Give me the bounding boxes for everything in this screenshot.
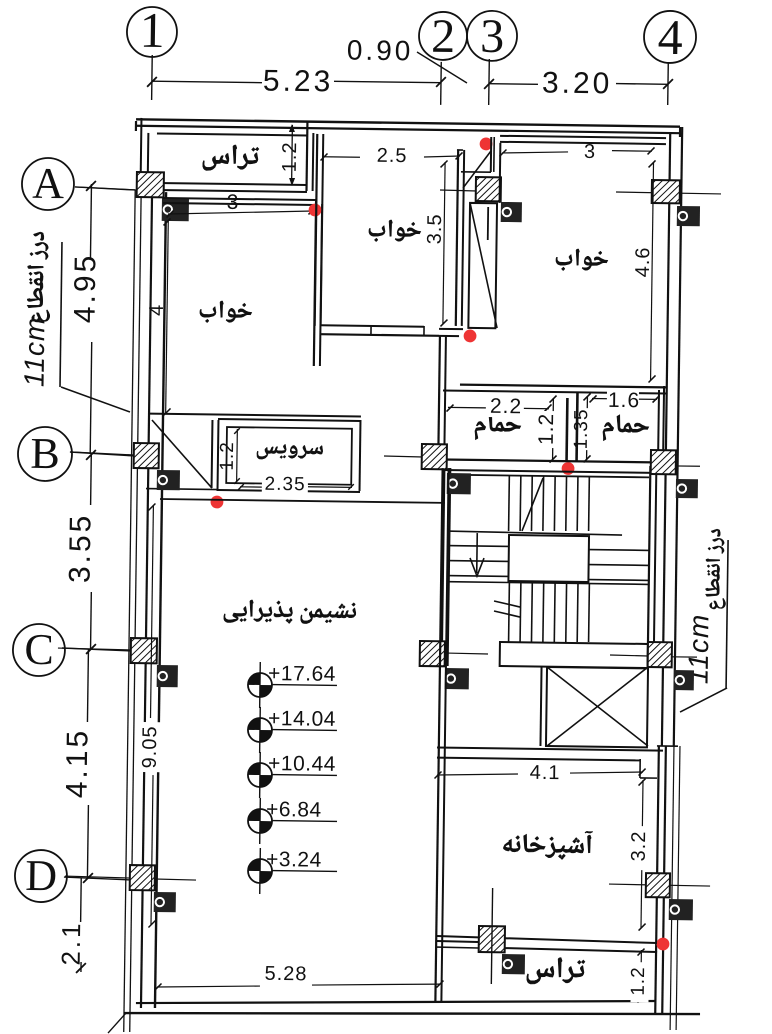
svg-text:5.23: 5.23 [263,64,334,98]
svg-text:4: 4 [146,304,168,316]
svg-text:3.5: 3.5 [424,213,446,244]
svg-text:5.28: 5.28 [264,963,307,986]
svg-text:3.2: 3.2 [628,830,650,861]
svg-text:A: A [32,159,65,208]
svg-text:+6.84: +6.84 [266,798,322,822]
svg-text:2.5: 2.5 [377,145,408,167]
svg-text:4.6: 4.6 [632,246,654,277]
svg-text:1.2: 1.2 [279,141,301,172]
svg-text:9.05: 9.05 [139,725,162,768]
svg-text:2.1: 2.1 [56,920,87,966]
svg-text:4.1: 4.1 [530,762,561,784]
svg-text:+3.24: +3.24 [266,848,322,872]
svg-text:1.6: 1.6 [608,389,641,412]
svg-text:B: B [30,429,60,478]
svg-text:2.2: 2.2 [490,395,523,418]
svg-text:D: D [25,851,57,900]
svg-text:1.2: 1.2 [217,441,238,471]
svg-text:3: 3 [480,10,505,63]
svg-text:2: 2 [431,10,456,63]
svg-text:3: 3 [584,141,596,163]
svg-text:4.15: 4.15 [61,728,95,799]
svg-text:0.90: 0.90 [347,35,414,67]
svg-text:4.95: 4.95 [68,252,102,323]
svg-text:1.35: 1.35 [571,408,593,449]
svg-text:3.55: 3.55 [64,512,98,583]
svg-text:3.20: 3.20 [542,66,613,100]
svg-text:11cm: 11cm [19,316,51,387]
svg-text:3: 3 [227,191,240,214]
svg-text:4: 4 [657,9,683,65]
svg-text:1.2: 1.2 [628,966,649,996]
svg-text:+10.44: +10.44 [268,752,336,776]
svg-text:1.2: 1.2 [535,413,558,446]
svg-text:+14.04: +14.04 [268,707,336,731]
svg-text:+17.64: +17.64 [268,662,336,686]
svg-text:1: 1 [139,2,165,58]
svg-text:C: C [24,625,54,674]
svg-text:2.35: 2.35 [264,474,305,496]
